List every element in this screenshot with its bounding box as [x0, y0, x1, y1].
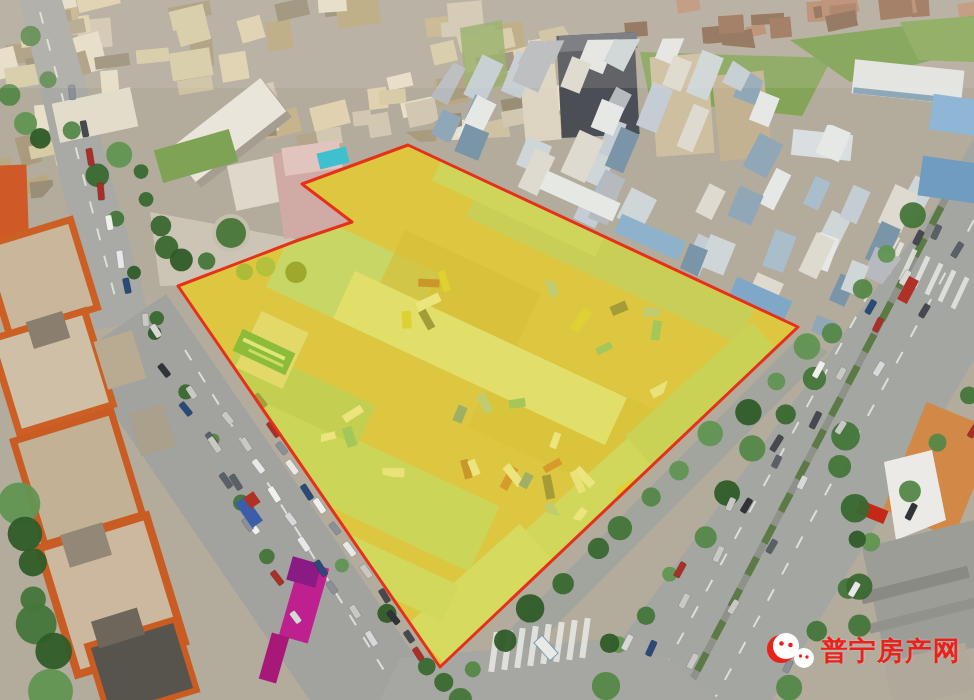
aerial-photo-stage: 普宁房产网	[0, 0, 974, 700]
warehouse-blue	[929, 94, 974, 136]
distance-haze	[0, 0, 974, 88]
circular-garden	[216, 218, 246, 248]
aerial-scene	[0, 0, 974, 700]
